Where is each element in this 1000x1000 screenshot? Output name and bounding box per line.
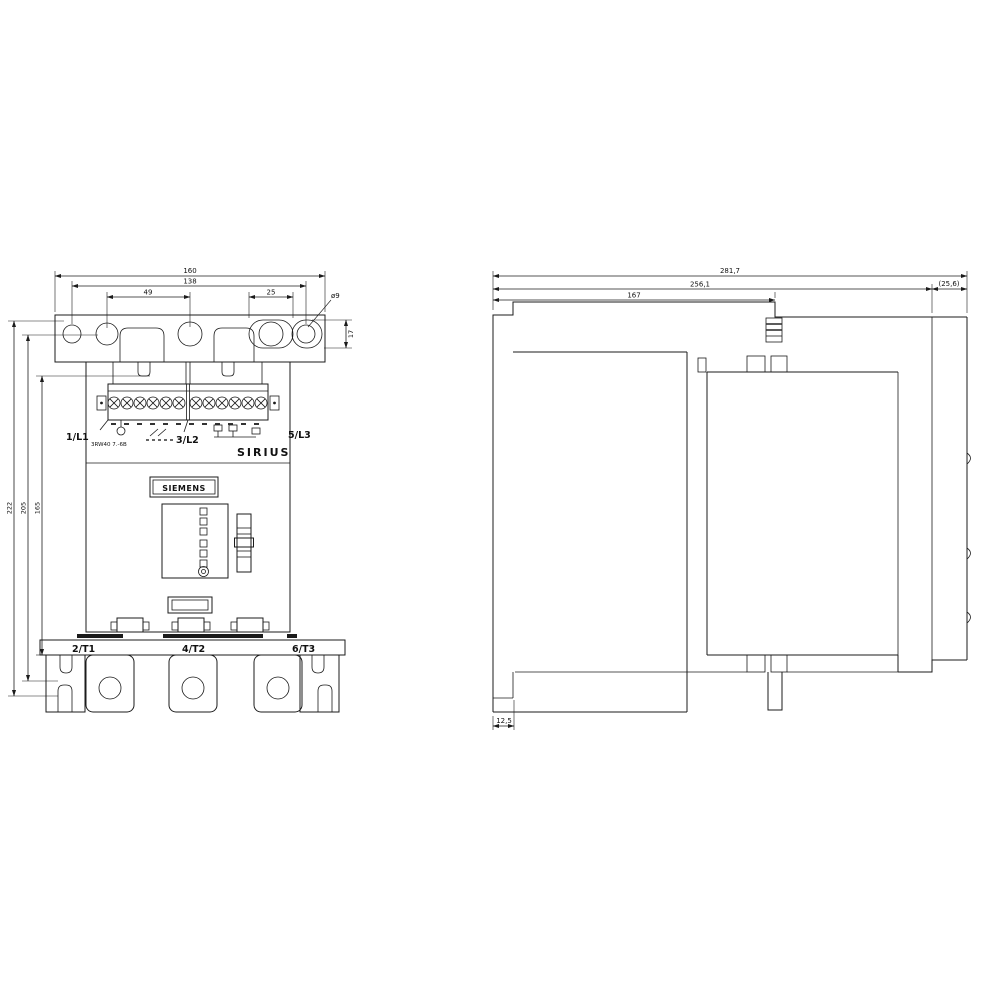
bottom-busbar-bracket: 2/T1 4/T2 6/T3	[40, 640, 345, 712]
dim-mount-span: 138	[183, 278, 196, 286]
dimension-drawing: 1/L1 3RW40 7.-6B 3/L2 5/L3 SIRIUS SIEMEN…	[0, 0, 1000, 1000]
type-note: 3RW40 7.-6B	[91, 442, 127, 448]
siemens-logo: SIEMENS	[150, 477, 218, 497]
dim-width-total: 160	[183, 267, 196, 275]
reset-screw	[199, 567, 209, 577]
led-indicator	[200, 540, 207, 547]
terminal-label-4t2: 4/T2	[182, 644, 205, 655]
mounting-hole	[297, 325, 315, 343]
label-window	[168, 597, 212, 613]
mounting-hole	[63, 325, 81, 343]
front-view-drawing: 1/L1 3RW40 7.-6B 3/L2 5/L3 SIRIUS SIEMEN…	[6, 267, 356, 712]
terminal-label-6t3: 6/T3	[292, 644, 315, 655]
led-indicator	[200, 508, 207, 515]
led-indicator	[200, 528, 207, 535]
bottom-clips	[77, 618, 297, 638]
terminal-label-1l1: 1/L1	[66, 432, 89, 443]
dim-slot-right: 25	[267, 289, 276, 297]
mounting-hole	[259, 322, 283, 346]
side-view-drawing: 281,7 256,1 (25,6) 167 12,5	[493, 267, 971, 730]
side-dimensions: 281,7 256,1 (25,6) 167 12,5	[493, 267, 967, 730]
dim-hole-diameter: ø9	[331, 292, 340, 300]
status-panel	[162, 504, 228, 578]
dim-depth-body: 256,1	[690, 281, 710, 289]
control-terminal-strip	[97, 384, 279, 440]
terminal-label-5l3: 5/L3	[288, 430, 311, 441]
sirius-label: SIRIUS	[237, 446, 290, 459]
led-indicator	[200, 550, 207, 557]
rotary-selector	[235, 514, 254, 572]
siemens-logo-text: SIEMENS	[162, 484, 206, 493]
dim-depth-tail: (25,6)	[938, 280, 959, 288]
dim-depth-total: 281,7	[720, 267, 740, 275]
led-indicator	[200, 518, 207, 525]
dim-height-outer: 222	[6, 502, 14, 514]
terminal-label-3l2: 3/L2	[176, 435, 199, 446]
dim-height-mid: 205	[20, 502, 28, 514]
dim-slot-height: 17	[347, 330, 355, 338]
dim-height-inner: 165	[34, 502, 42, 514]
busbar-hole	[267, 677, 289, 699]
busbar-hole	[99, 677, 121, 699]
side-profile	[493, 302, 971, 712]
terminal-label-2t1: 2/T1	[72, 644, 95, 655]
dim-foot: 12,5	[496, 717, 512, 725]
busbar-hole	[182, 677, 204, 699]
led-indicator	[200, 560, 207, 567]
dimension-drawing-page: 1/L1 3RW40 7.-6B 3/L2 5/L3 SIRIUS SIEMEN…	[0, 0, 1000, 1000]
dim-depth-front: 167	[627, 292, 640, 300]
dim-hole-offset-left: 49	[144, 289, 153, 297]
